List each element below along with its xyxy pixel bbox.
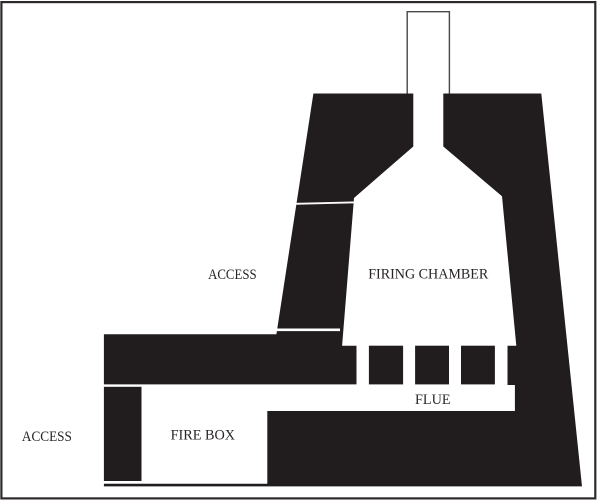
svg-text:FLUE: FLUE — [415, 392, 451, 408]
svg-text:ACCESS: ACCESS — [208, 267, 257, 283]
svg-text:FIRE BOX: FIRE BOX — [171, 428, 236, 444]
svg-text:ACCESS: ACCESS — [22, 429, 72, 445]
svg-text:FIRING CHAMBER: FIRING CHAMBER — [368, 267, 489, 283]
